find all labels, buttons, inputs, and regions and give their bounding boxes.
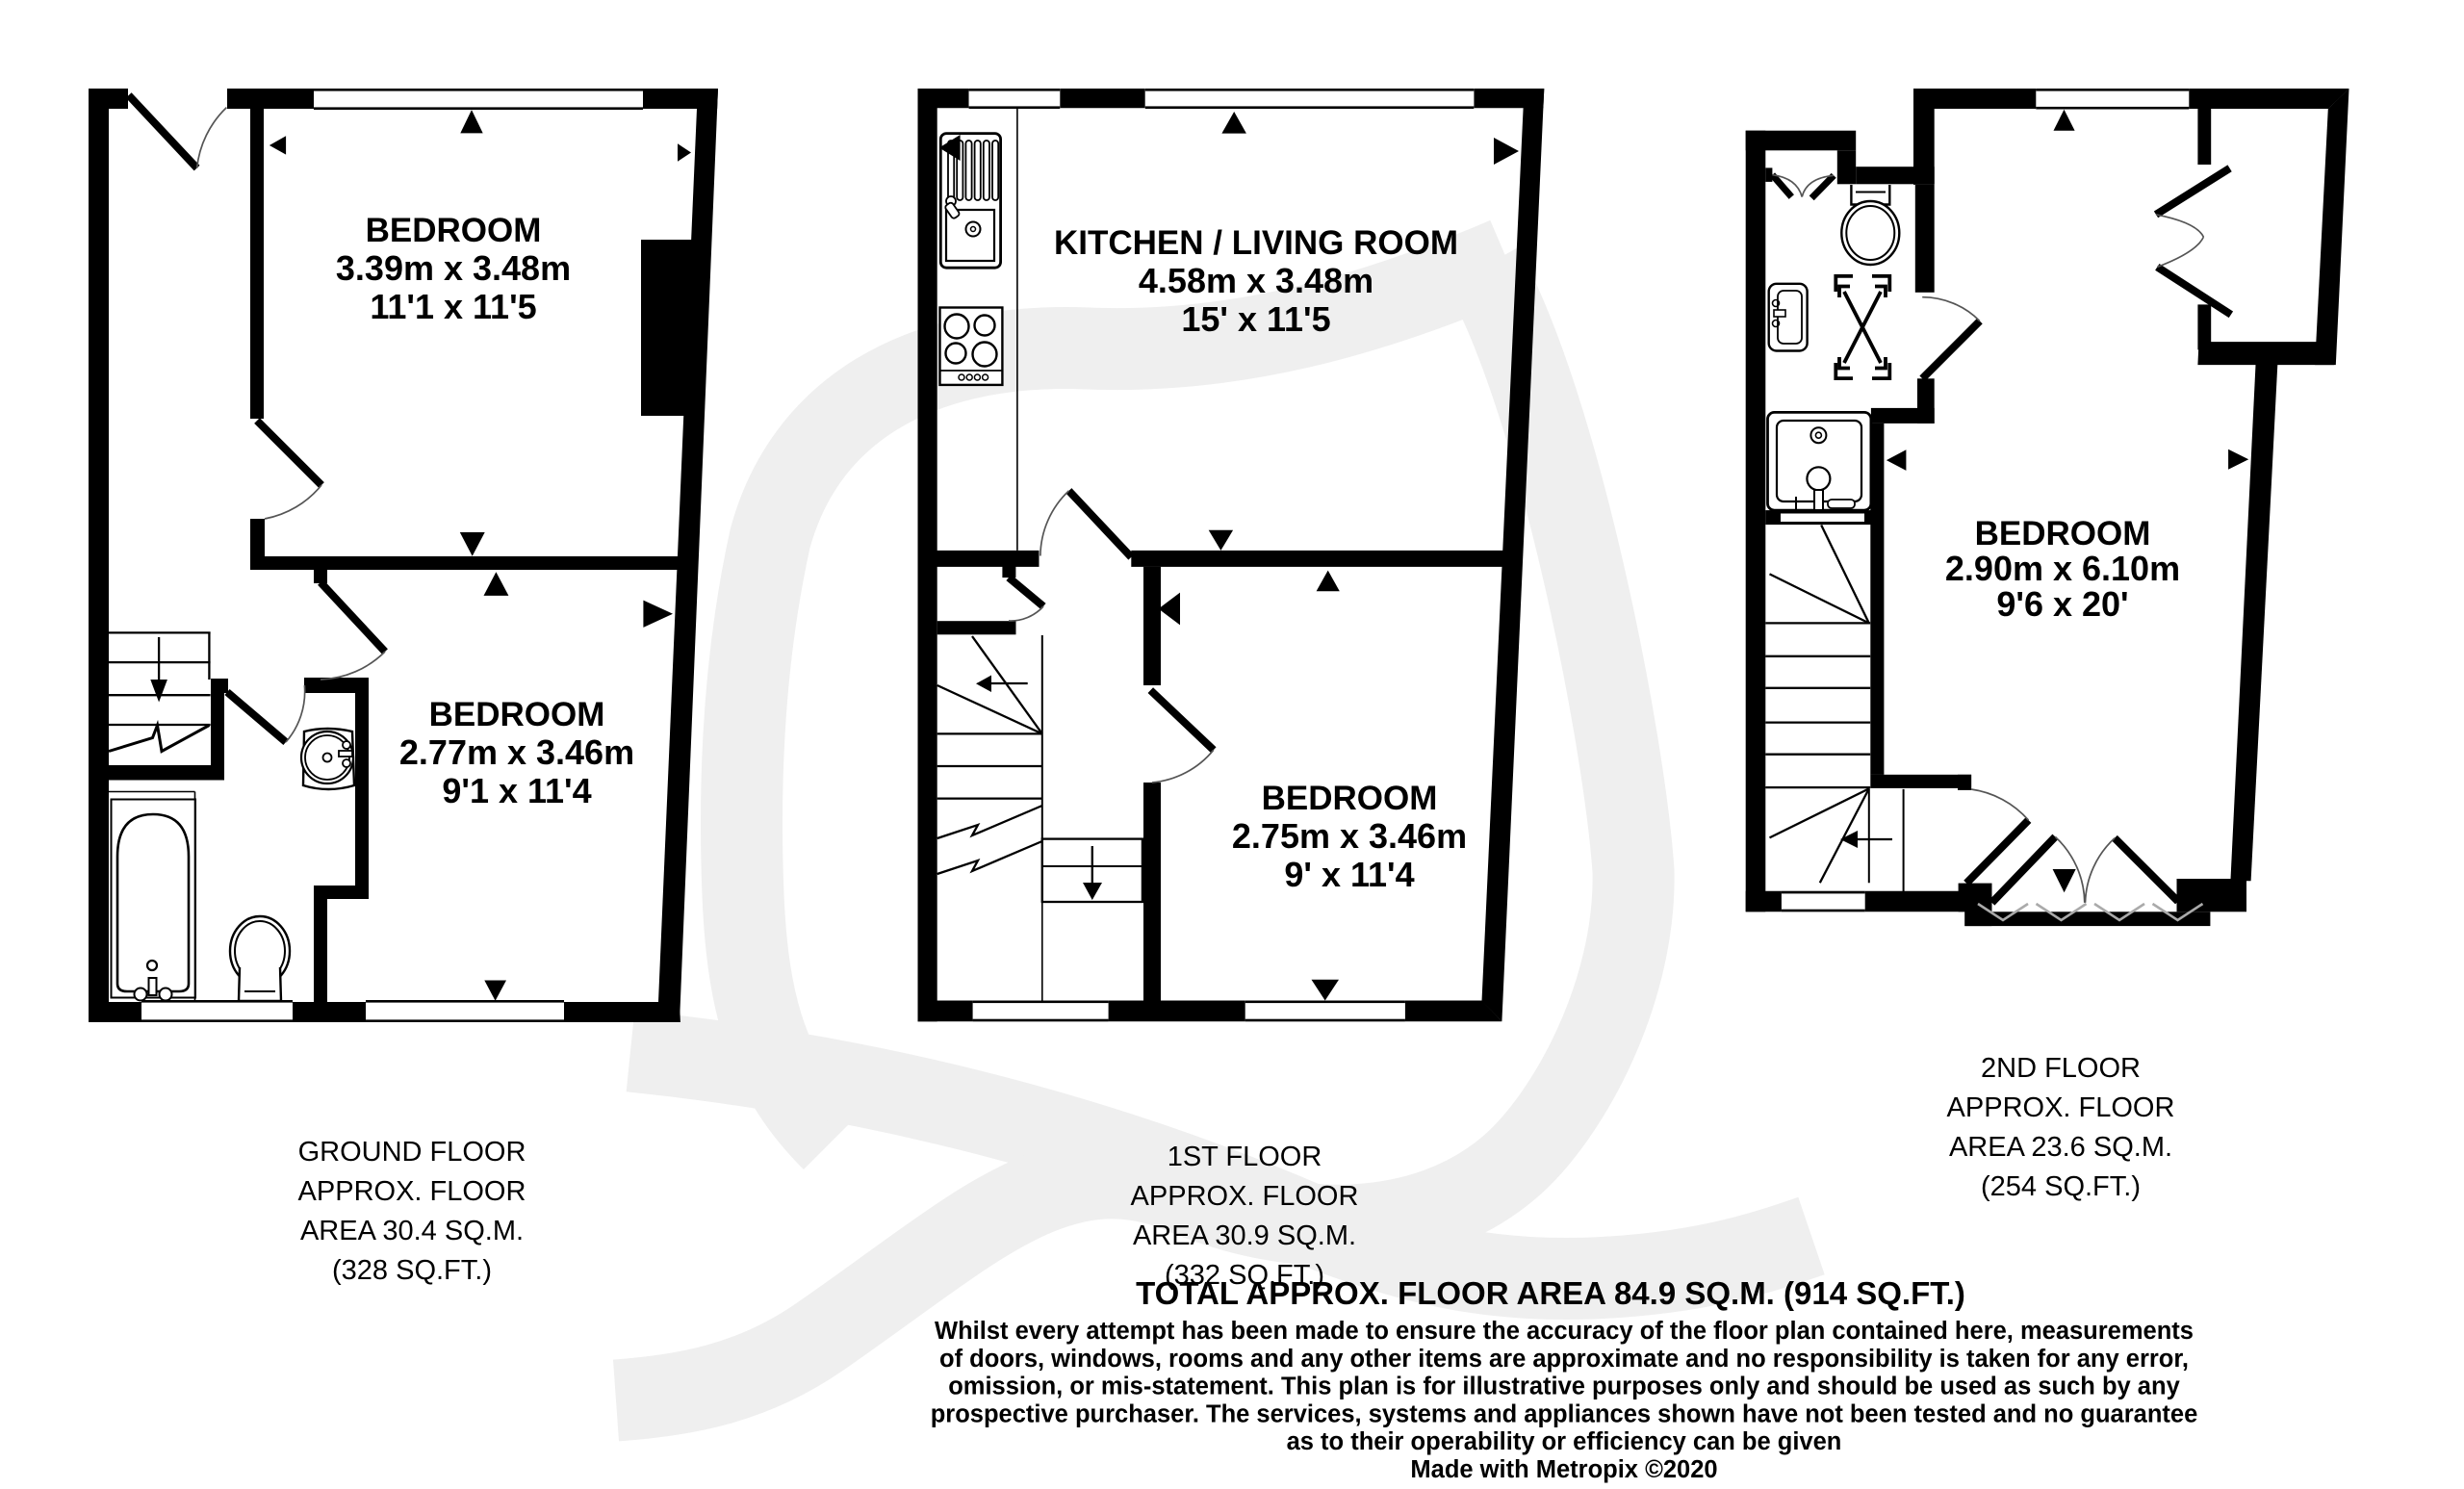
svg-text:KITCHEN / LIVING ROOM: KITCHEN / LIVING ROOM [1054,224,1458,262]
svg-text:9'6 x 20': 9'6 x 20' [1996,584,2128,624]
svg-text:9' x 11'4: 9' x 11'4 [1284,855,1414,894]
svg-text:2.77m x 3.46m: 2.77m x 3.46m [399,732,634,772]
svg-text:2.75m x 3.46m: 2.75m x 3.46m [1232,816,1467,856]
svg-text:BEDROOM: BEDROOM [366,212,542,249]
svg-text:BEDROOM: BEDROOM [1975,515,2151,552]
svg-text:Made with Metropix ©2020: Made with Metropix ©2020 [1410,1456,1717,1483]
svg-text:4.58m x 3.48m: 4.58m x 3.48m [1139,261,1373,300]
svg-text:2.90m x 6.10m: 2.90m x 6.10m [1945,549,2180,588]
svg-text:(254 SQ.FT.): (254 SQ.FT.) [1981,1171,2141,1202]
svg-text:omission, or mis-statement. Th: omission, or mis-statement. This plan is… [948,1373,2180,1400]
svg-text:9'1 x 11'4: 9'1 x 11'4 [442,771,591,810]
svg-text:AREA 30.4 SQ.M.: AREA 30.4 SQ.M. [300,1216,524,1246]
svg-text:of doors, windows, rooms and a: of doors, windows, rooms and any other i… [939,1346,2189,1373]
svg-text:AREA 23.6 SQ.M.: AREA 23.6 SQ.M. [1949,1132,2172,1163]
svg-text:GROUND FLOOR: GROUND FLOOR [298,1137,526,1168]
svg-text:(328 SQ.FT.): (328 SQ.FT.) [332,1255,492,1286]
svg-text:AREA 30.9 SQ.M.: AREA 30.9 SQ.M. [1133,1220,1356,1251]
svg-text:APPROX. FLOOR: APPROX. FLOOR [298,1176,526,1207]
svg-text:TOTAL APPROX. FLOOR AREA 84.9: TOTAL APPROX. FLOOR AREA 84.9 SQ.M. (914… [1136,1275,1965,1311]
svg-text:prospective purchaser. The ser: prospective purchaser. The services, sys… [931,1400,2198,1427]
svg-text:11'1 x 11'5: 11'1 x 11'5 [370,287,536,326]
svg-text:APPROX. FLOOR: APPROX. FLOOR [1947,1092,2175,1123]
svg-text:1ST FLOOR: 1ST FLOOR [1168,1142,1322,1172]
svg-text:3.39m x 3.48m: 3.39m x 3.48m [336,248,571,288]
svg-text:BEDROOM: BEDROOM [429,696,605,733]
svg-text:2ND FLOOR: 2ND FLOOR [1981,1053,2141,1084]
svg-text:BEDROOM: BEDROOM [1262,780,1438,817]
svg-text:APPROX. FLOOR: APPROX. FLOOR [1131,1181,1359,1212]
svg-text:15' x 11'5: 15' x 11'5 [1181,299,1330,339]
svg-text:Whilst every attempt has been: Whilst every attempt has been made to en… [935,1318,2194,1345]
svg-text:as to their operability or eff: as to their operability or efficiency ca… [1287,1428,1842,1455]
